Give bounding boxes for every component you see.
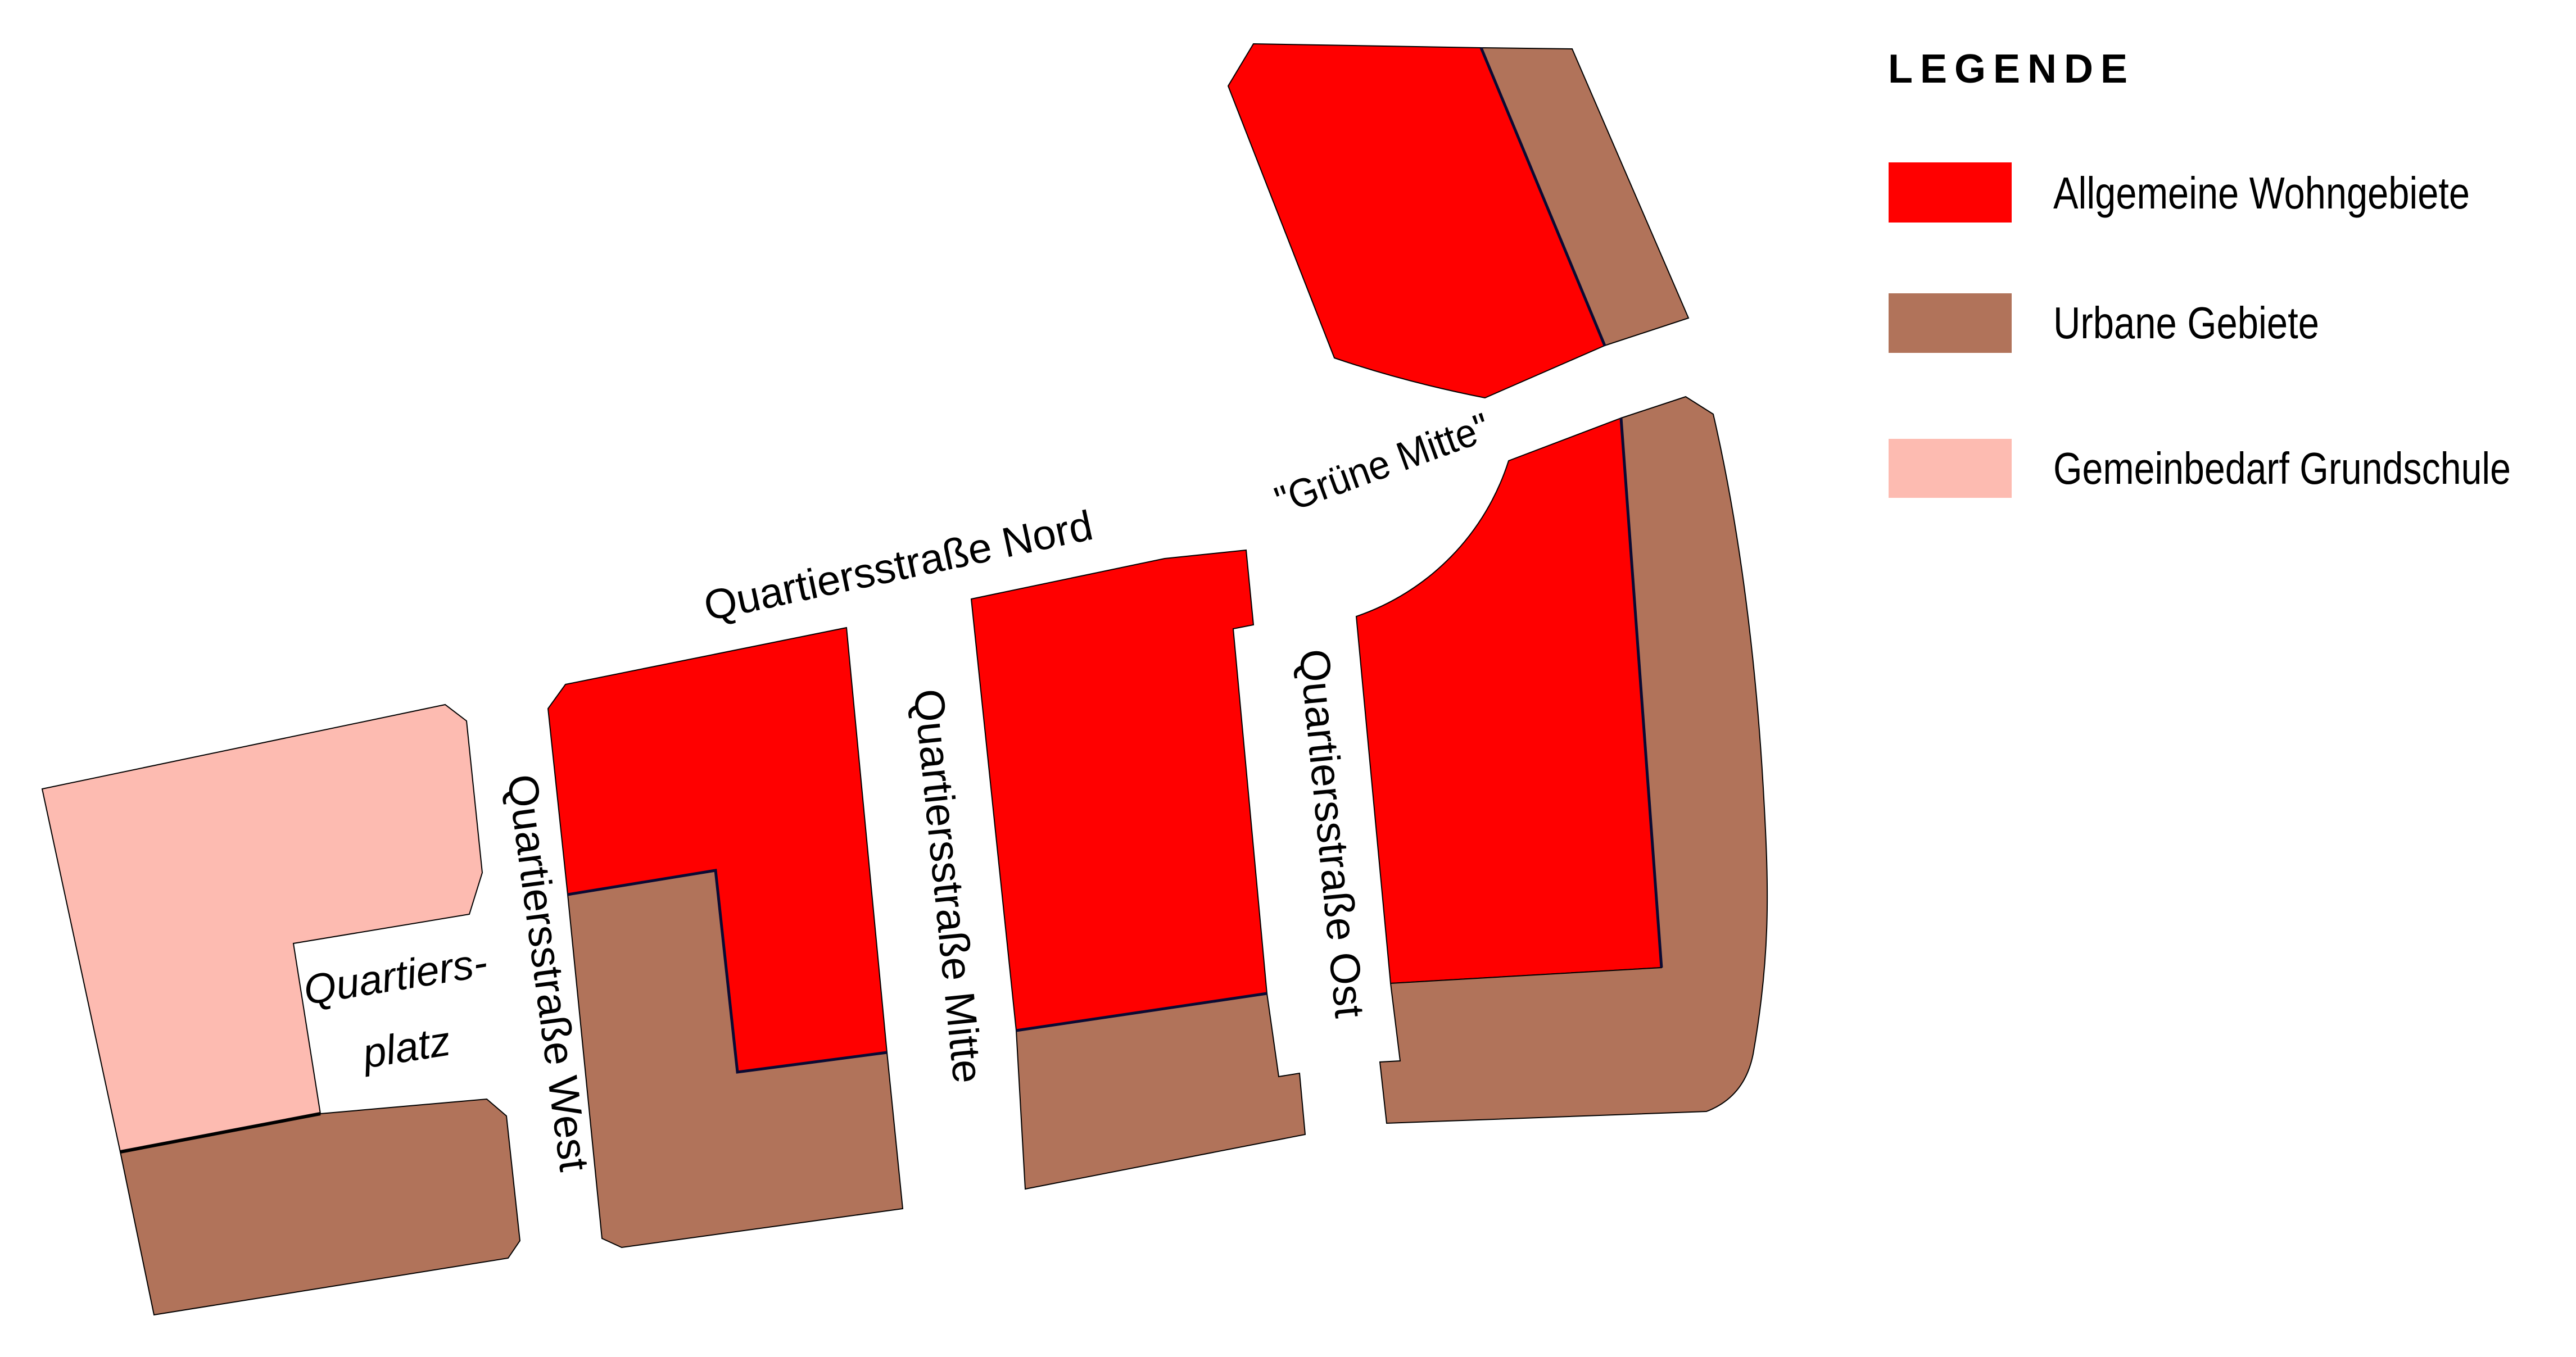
- svg-text:LEGENDE: LEGENDE: [1888, 47, 2135, 92]
- svg-text:Allgemeine Wohngebiete: Allgemeine Wohngebiete: [2053, 168, 2470, 218]
- svg-text:Urbane Gebiete: Urbane Gebiete: [2053, 298, 2319, 348]
- svg-text:Gemeinbedarf Grundschule: Gemeinbedarf Grundschule: [2053, 443, 2511, 493]
